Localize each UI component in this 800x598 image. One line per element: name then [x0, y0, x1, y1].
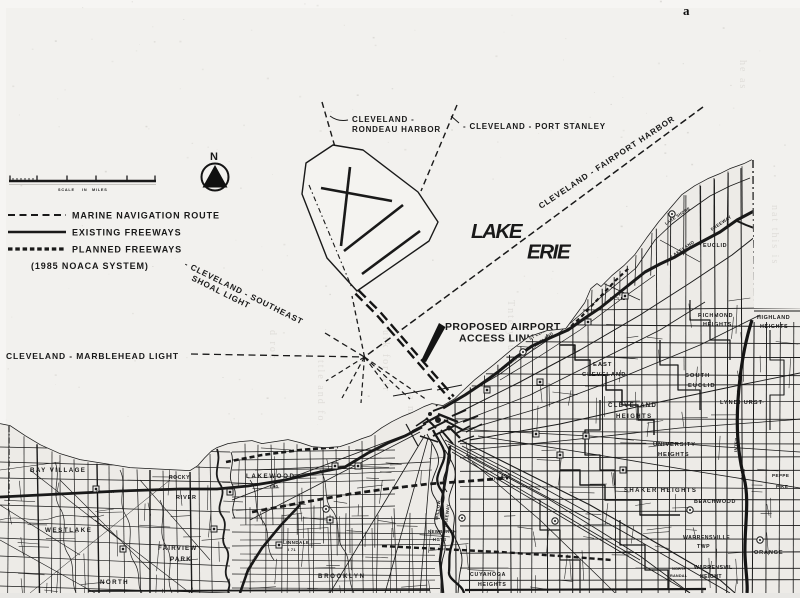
svg-text:PIKE: PIKE [776, 484, 788, 489]
svg-text:EAST: EAST [593, 362, 612, 368]
svg-text:MILES: MILES [92, 188, 108, 192]
svg-text:ERIE: ERIE [527, 241, 572, 264]
svg-text:EXISTING FREEWAYS: EXISTING FREEWAYS [72, 228, 182, 238]
svg-text:NORTH: NORTH [100, 579, 129, 586]
svg-text:I 90: I 90 [270, 484, 279, 489]
svg-text:LINNDALE: LINNDALE [283, 540, 309, 545]
svg-text:WARRENSVILLE: WARRENSVILLE [683, 535, 730, 541]
svg-text:HEIGHTS: HEIGHTS [478, 582, 507, 588]
svg-text:HEIGHTS: HEIGHTS [760, 324, 788, 330]
svg-text:SOUTH: SOUTH [685, 373, 710, 379]
svg-text:CLEVELAND - MARBLEHEAD LIGHT: CLEVELAND - MARBLEHEAD LIGHT [6, 351, 179, 361]
svg-text:HEIGHTS: HEIGHTS [616, 414, 652, 420]
svg-text:BEACHWOOD: BEACHWOOD [694, 499, 736, 505]
svg-text:RANDAL: RANDAL [670, 574, 688, 578]
svg-text:PROPOSED AIRPORT: PROPOSED AIRPORT [445, 321, 561, 333]
svg-text:EUCLID: EUCLID [703, 243, 727, 249]
svg-text:MARINE NAVIGATION ROUTE: MARINE NAVIGATION ROUTE [72, 211, 220, 221]
svg-text:ROCKY: ROCKY [169, 475, 190, 481]
svg-text:BELT: BELT [740, 467, 746, 480]
svg-text:he as: he as [737, 60, 748, 90]
svg-text:LYNDHURST: LYNDHURST [720, 400, 763, 406]
svg-text:BAY VILLAGE: BAY VILLAGE [30, 467, 86, 474]
svg-text:FAIRVIEW: FAIRVIEW [158, 545, 197, 552]
svg-text:CLEVELAND -: CLEVELAND - [352, 115, 415, 124]
svg-text:PEPPE: PEPPE [772, 473, 789, 478]
svg-text:ORANGE: ORANGE [754, 550, 783, 556]
svg-text:WARRENSVIL: WARRENSVIL [694, 565, 733, 571]
svg-text:HIGHLAND: HIGHLAND [757, 315, 790, 321]
svg-text:UNIVERSITY: UNIVERSITY [653, 442, 696, 448]
svg-text:PARK: PARK [170, 556, 192, 563]
svg-text:DETROIT: DETROIT [96, 490, 115, 494]
svg-text:I 71: I 71 [288, 547, 296, 552]
svg-text:LAKEWOOD: LAKEWOOD [246, 473, 296, 480]
svg-text:SHAKER HEIGHTS: SHAKER HEIGHTS [624, 488, 697, 494]
svg-text:IN: IN [82, 188, 87, 192]
svg-text:RIVER: RIVER [176, 495, 197, 501]
svg-text:TWP: TWP [697, 544, 710, 550]
svg-text:CLEVELAND: CLEVELAND [608, 403, 657, 409]
svg-text:HGTS: HGTS [433, 537, 446, 542]
svg-text:WESTLAKE: WESTLAKE [45, 527, 93, 534]
svg-text:INTER: INTER [733, 437, 739, 452]
svg-text:N: N [210, 151, 218, 163]
svg-text:HEIGHTS: HEIGHTS [658, 452, 689, 458]
svg-text:LAKE: LAKE [471, 220, 524, 243]
svg-text:a: a [683, 3, 690, 18]
svg-text:BROOKLYN: BROOKLYN [318, 573, 366, 580]
svg-text:SCALE: SCALE [58, 188, 75, 192]
svg-text:EUCLID: EUCLID [688, 383, 716, 389]
svg-text:NEWBURGH: NEWBURGH [428, 529, 457, 534]
svg-text:ttle and fo: ttle and fo [315, 360, 326, 423]
svg-text:- CLEVELAND - PORT STANLEY: - CLEVELAND - PORT STANLEY [463, 122, 606, 131]
svg-text:(1985 NOACA SYSTEM): (1985 NOACA SYSTEM) [31, 261, 149, 271]
svg-text:CLEVELAND: CLEVELAND [582, 372, 626, 378]
svg-text:NORTH: NORTH [672, 567, 687, 571]
svg-text:nat this is: nat this is [769, 205, 780, 265]
svg-text:CUYAHOGA: CUYAHOGA [470, 572, 506, 578]
svg-text:HEIGHTS: HEIGHTS [703, 322, 732, 328]
svg-text:RICHMOND: RICHMOND [698, 313, 733, 319]
svg-text:RONDEAU HARBOR: RONDEAU HARBOR [352, 125, 441, 134]
svg-text:I 490: I 490 [494, 476, 505, 481]
svg-text:PLANNED FREEWAYS: PLANNED FREEWAYS [72, 245, 182, 255]
svg-text:HEIGHT: HEIGHT [700, 574, 722, 580]
